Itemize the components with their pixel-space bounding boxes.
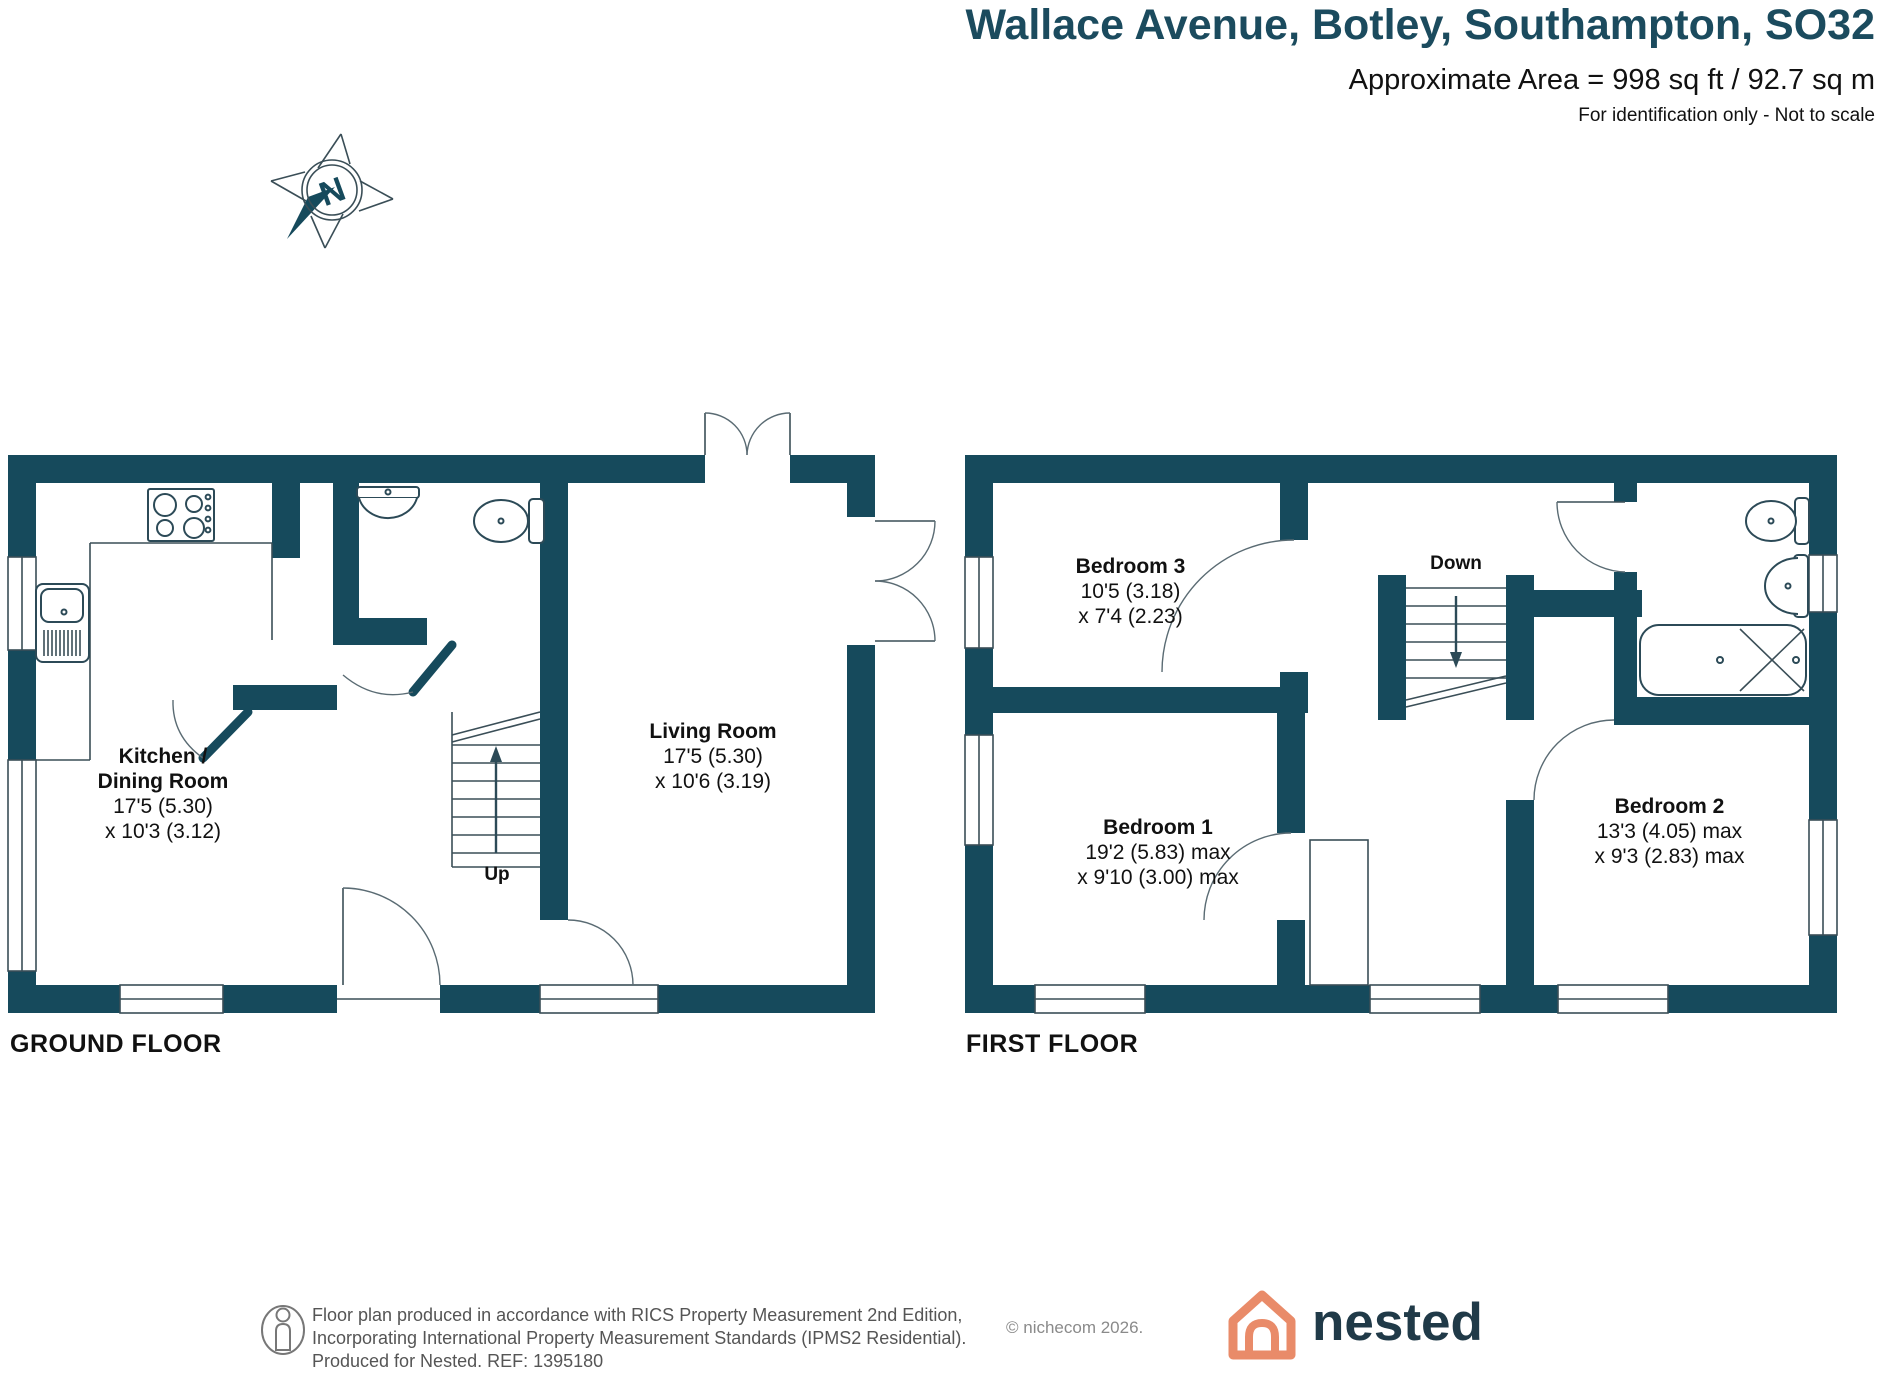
wc-sink-icon <box>357 487 419 518</box>
wc-toilet-icon <box>474 499 544 543</box>
first-floor-plan <box>965 455 1837 1013</box>
room-label-bedroom-1: Bedroom 1 19'2 (5.83) max x 9'10 (3.00) … <box>1048 815 1268 890</box>
bathroom-sink-icon <box>1765 555 1808 617</box>
french-doors <box>875 521 935 641</box>
copyright: © nichecom 2026. <box>1006 1318 1143 1338</box>
page-title: Wallace Avenue, Botley, Southampton, SO3… <box>965 0 1875 50</box>
person-icon <box>262 1306 304 1354</box>
floor-label-first: FIRST FLOOR <box>966 1030 1138 1059</box>
approximate-area: Approximate Area = 998 sq ft / 92.7 sq m <box>965 64 1875 97</box>
rics-note: Floor plan produced in accordance with R… <box>312 1304 966 1373</box>
hob-icon <box>148 489 214 541</box>
floorplan-page: N <box>0 0 1890 1377</box>
room-label-living-room: Living Room 17'5 (5.30) x 10'6 (3.19) <box>618 719 808 794</box>
room-label-bedroom-2: Bedroom 2 13'3 (4.05) max x 9'3 (2.83) m… <box>1552 794 1787 869</box>
living-room-door <box>568 920 633 985</box>
compass-rose-icon: N <box>271 134 393 248</box>
room-label-bedroom-3: Bedroom 3 10'5 (3.18) x 7'4 (2.23) <box>1038 554 1223 629</box>
cupboard <box>1310 840 1368 985</box>
bathroom-toilet-icon <box>1746 498 1809 544</box>
room-label-kitchen-dining: Kitchen / Dining Room 17'5 (5.30) x 10'3… <box>58 744 268 844</box>
header: Wallace Avenue, Botley, Southampton, SO3… <box>965 0 1875 127</box>
bath-icon <box>1640 625 1806 695</box>
nested-wordmark: nested <box>1312 1292 1483 1353</box>
compass-north-label: N <box>314 170 350 214</box>
bathroom-door <box>1557 502 1625 572</box>
stairs-up-label: Up <box>452 864 542 886</box>
patio-doors <box>705 413 790 455</box>
ground-floor-plan <box>8 413 935 1013</box>
bedroom2-door <box>1534 720 1614 800</box>
floorplan-graphics: N <box>0 0 1890 1377</box>
stairs-up <box>452 712 540 867</box>
stairs-down <box>1406 588 1506 707</box>
nested-house-icon <box>1233 1295 1291 1355</box>
kitchen-sink-icon <box>36 584 89 662</box>
front-door <box>343 888 440 985</box>
floor-label-ground: GROUND FLOOR <box>10 1030 222 1059</box>
wc-door <box>343 645 452 695</box>
disclaimer: For identification only - Not to scale <box>965 105 1875 127</box>
stairs-down-label: Down <box>1406 553 1506 575</box>
